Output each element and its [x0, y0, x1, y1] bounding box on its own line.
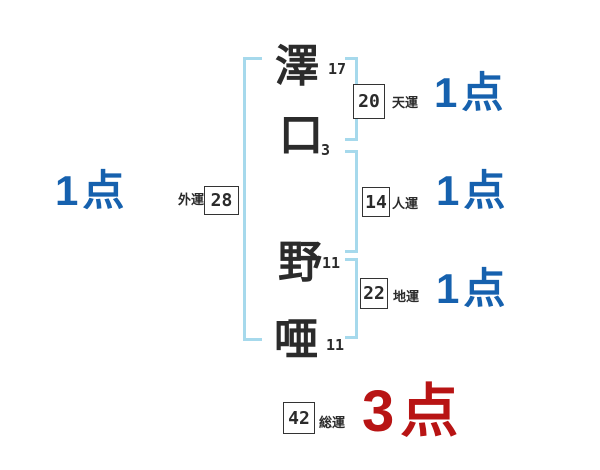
person-luck-bracket — [345, 150, 358, 253]
total-luck-value: 42 — [288, 408, 310, 429]
person-luck-label: 人運 — [392, 197, 418, 210]
outer-luck-value-box: 28 — [204, 186, 239, 215]
outer-luck-score: 1点 — [55, 168, 128, 214]
kanji-character-3: 野 — [276, 241, 324, 285]
earth-luck-bracket — [345, 258, 358, 339]
kanji-character-1: 澤 — [273, 45, 321, 89]
earth-luck-value: 22 — [363, 283, 385, 304]
heaven-luck-label: 天運 — [392, 96, 418, 109]
stroke-count-4: 11 — [326, 338, 344, 353]
stroke-count-3: 11 — [322, 256, 340, 271]
earth-luck-value-box: 22 — [360, 278, 388, 309]
person-luck-score: 1点 — [436, 168, 509, 214]
person-luck-value: 14 — [365, 192, 387, 213]
outer-luck-bracket — [243, 57, 262, 341]
total-luck-value-box: 42 — [283, 402, 315, 434]
person-luck-value-box: 14 — [362, 187, 390, 217]
outer-luck-label: 外運 — [178, 193, 204, 206]
stroke-count-1: 17 — [328, 62, 346, 77]
total-luck-label: 総運 — [319, 416, 345, 429]
kanji-character-4: 唖 — [272, 318, 320, 362]
outer-luck-value: 28 — [211, 190, 233, 211]
stroke-count-2: 3 — [321, 143, 330, 158]
heaven-luck-value: 20 — [358, 91, 380, 112]
heaven-luck-value-box: 20 — [353, 84, 385, 119]
total-luck-score: 3点 — [362, 380, 464, 444]
earth-luck-label: 地運 — [393, 290, 419, 303]
earth-luck-score: 1点 — [436, 266, 509, 312]
heaven-luck-score: 1点 — [434, 70, 507, 116]
kanji-character-2: 口 — [277, 114, 325, 158]
